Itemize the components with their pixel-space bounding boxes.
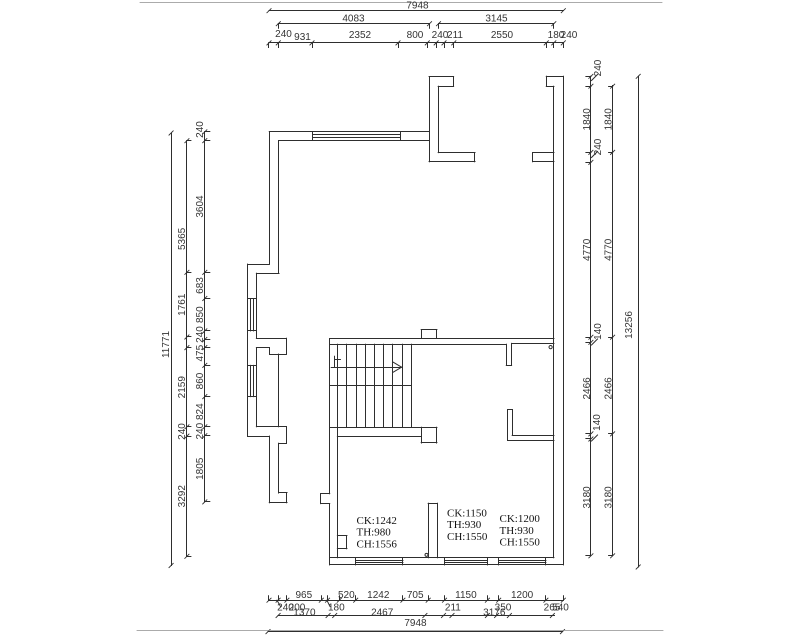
svg-text:2550: 2550: [491, 30, 514, 41]
svg-text:1200: 1200: [511, 590, 534, 601]
svg-text:860: 860: [195, 372, 206, 389]
svg-text:1150: 1150: [455, 590, 477, 601]
svg-text:211: 211: [445, 603, 461, 614]
svg-text:11771: 11771: [161, 331, 172, 359]
svg-text:140: 140: [593, 323, 604, 340]
svg-text:1840: 1840: [582, 108, 593, 131]
svg-text:2467: 2467: [371, 608, 394, 619]
svg-text:140: 140: [592, 414, 603, 431]
svg-text:2352: 2352: [349, 30, 372, 41]
svg-text:7948: 7948: [406, 0, 429, 11]
svg-text:CK:1200: CK:1200: [500, 513, 541, 525]
svg-text:4083: 4083: [342, 14, 365, 25]
svg-text:350: 350: [495, 603, 512, 614]
svg-text:13256: 13256: [624, 311, 635, 339]
svg-text:1370: 1370: [293, 608, 316, 619]
svg-text:800: 800: [407, 30, 424, 41]
svg-text:824: 824: [195, 403, 206, 420]
svg-text:180: 180: [328, 603, 345, 614]
svg-text:3604: 3604: [195, 195, 206, 218]
svg-text:1761: 1761: [177, 293, 188, 316]
svg-text:2159: 2159: [177, 376, 188, 399]
svg-text:520: 520: [338, 590, 355, 601]
svg-text:931: 931: [294, 32, 311, 43]
svg-text:4770: 4770: [604, 238, 615, 261]
svg-text:475: 475: [195, 344, 206, 361]
svg-text:4770: 4770: [582, 238, 593, 261]
svg-text:CK:1242: CK:1242: [357, 515, 397, 527]
svg-text:240: 240: [195, 422, 206, 439]
svg-text:850: 850: [195, 306, 206, 323]
svg-text:CH:1556: CH:1556: [357, 538, 398, 550]
svg-text:1805: 1805: [195, 457, 206, 480]
svg-text:CK:1150: CK:1150: [447, 507, 487, 519]
svg-text:540: 540: [552, 603, 569, 614]
svg-text:211: 211: [447, 30, 463, 41]
svg-text:240: 240: [195, 326, 206, 343]
svg-text:965: 965: [295, 590, 312, 601]
svg-text:240: 240: [593, 138, 604, 155]
svg-text:3180: 3180: [582, 486, 593, 509]
svg-text:3180: 3180: [604, 486, 615, 509]
svg-text:TH:930: TH:930: [500, 525, 535, 537]
svg-text:CH:1550: CH:1550: [500, 537, 541, 549]
svg-text:240: 240: [177, 423, 188, 440]
svg-text:3292: 3292: [177, 485, 188, 508]
svg-text:2466: 2466: [604, 377, 615, 400]
svg-text:TH:980: TH:980: [357, 527, 392, 539]
svg-text:TH:930: TH:930: [447, 519, 482, 531]
svg-text:240: 240: [593, 59, 604, 76]
svg-text:7948: 7948: [404, 618, 427, 629]
svg-text:705: 705: [407, 590, 424, 601]
svg-text:240: 240: [195, 121, 206, 138]
svg-text:3145: 3145: [485, 14, 508, 25]
svg-text:5365: 5365: [177, 227, 188, 250]
svg-text:240: 240: [275, 29, 292, 40]
svg-text:2466: 2466: [582, 377, 593, 400]
svg-text:1242: 1242: [367, 590, 390, 601]
svg-text:1840: 1840: [604, 108, 615, 131]
svg-text:240: 240: [561, 30, 578, 41]
svg-text:CH:1550: CH:1550: [447, 531, 488, 543]
svg-text:683: 683: [195, 277, 206, 294]
